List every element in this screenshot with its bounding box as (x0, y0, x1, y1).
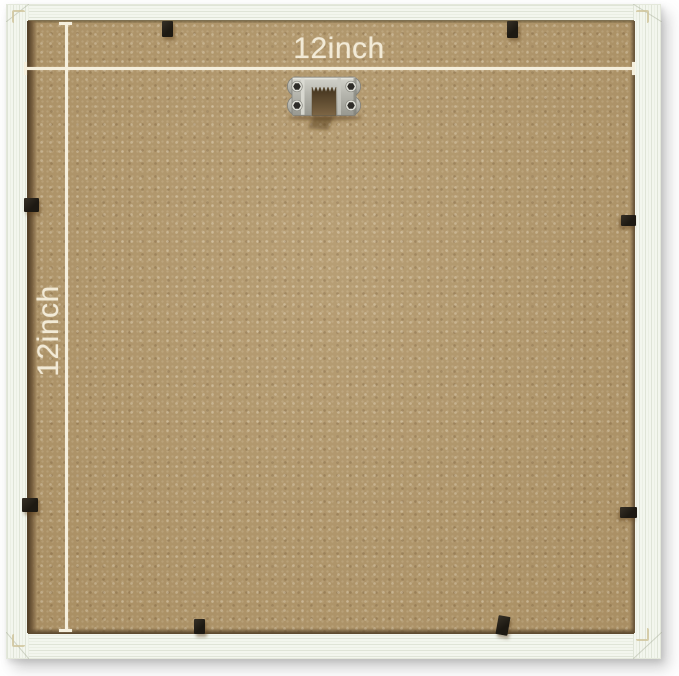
retainer-tab-right-lower (620, 507, 637, 518)
width-dimension-cap-left (24, 62, 27, 75)
retainer-tab-left-lower (22, 498, 38, 512)
sawtooth-hanger-icon (283, 73, 365, 133)
product-photo-frame-back: 12inch 12inch (0, 0, 679, 676)
retainer-tab-top-right (507, 21, 518, 38)
frame-bar-left (7, 5, 29, 658)
width-dimension-cap-right (632, 62, 635, 75)
height-dimension-cap-top (59, 22, 72, 25)
retainer-tab-right-upper (621, 215, 636, 226)
retainer-tab-left-upper (24, 198, 39, 212)
width-dimension-line (25, 67, 634, 70)
retainer-tab-top-left (162, 21, 173, 37)
height-dimension-cap-bottom (59, 629, 72, 632)
frame-bar-right (633, 5, 660, 658)
frame-bar-bottom (7, 632, 660, 658)
retainer-tab-bottom-left (194, 619, 205, 634)
width-label: 12inch (293, 32, 384, 66)
height-label: 12inch (32, 285, 66, 376)
frame-bar-top (7, 5, 660, 22)
